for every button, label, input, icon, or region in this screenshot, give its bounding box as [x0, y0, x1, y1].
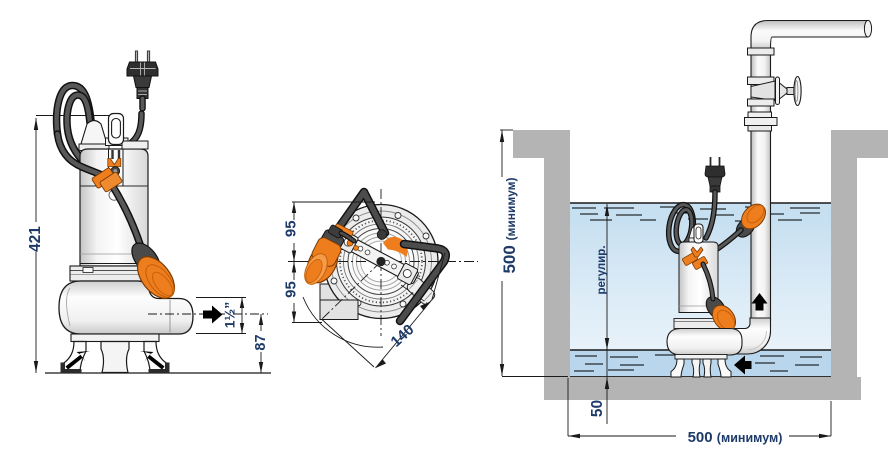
- svg-text:500 (минимум): 500 (минимум): [688, 429, 783, 446]
- svg-text:1½”: 1½”: [222, 302, 238, 328]
- svg-text:421: 421: [27, 226, 44, 252]
- svg-text:регулир.: регулир.: [596, 245, 608, 294]
- svg-text:87: 87: [253, 334, 269, 350]
- svg-text:500 (минимум): 500 (минимум): [500, 177, 519, 273]
- svg-text:140: 140: [388, 321, 418, 350]
- svg-text:95: 95: [283, 220, 300, 237]
- svg-text:95: 95: [283, 281, 300, 298]
- svg-text:50: 50: [589, 400, 606, 417]
